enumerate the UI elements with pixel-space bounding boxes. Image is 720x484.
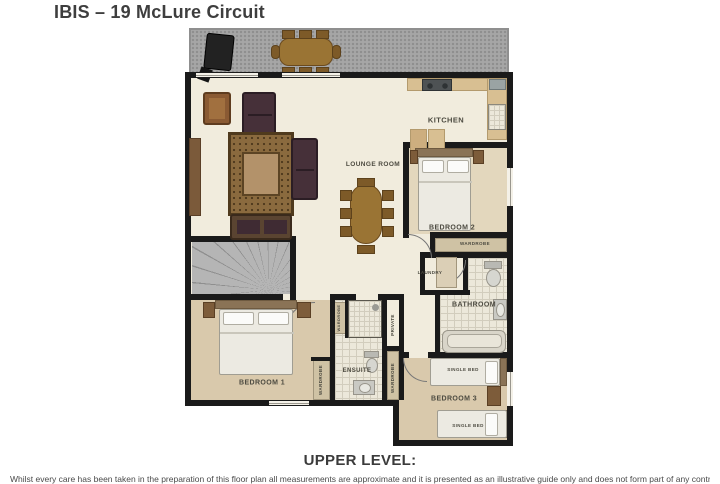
toilet-tank [364, 351, 379, 358]
pillow [485, 413, 498, 436]
wall-segment [290, 236, 296, 300]
wall-segment [430, 232, 507, 238]
window-glass-line [269, 403, 309, 404]
window [507, 372, 513, 406]
vanity-bowl [359, 383, 371, 393]
pillow [258, 312, 289, 325]
bedroom1-label: BEDROOM 1 [239, 380, 285, 387]
single-bed-bottom-label: SINGLE BED [452, 424, 484, 429]
dining-chair [340, 208, 352, 219]
vanity [353, 380, 375, 395]
bed-headboard [415, 148, 473, 157]
wardrobe-bedroom1-label: WARDROBE [319, 365, 324, 395]
bed-headboard [215, 300, 297, 309]
pillow [485, 361, 498, 384]
double-bed [219, 309, 293, 375]
bedside-table [487, 386, 501, 406]
basin-bowl [496, 303, 505, 317]
dining-chair [382, 226, 394, 237]
bathroom-label: BATHROOM [452, 302, 496, 309]
bed-headboard [500, 358, 507, 386]
sofa [291, 138, 318, 200]
kitchen-label: KITCHEN [428, 116, 464, 124]
bedroom2-label: BEDROOM 2 [429, 225, 475, 232]
wall-segment [393, 440, 513, 446]
armchair-cushion [209, 98, 225, 119]
wall-segment [435, 290, 440, 356]
bathtub-inner [447, 334, 502, 348]
dining-chair [382, 190, 394, 201]
outdoor-chair [282, 30, 295, 39]
toilet-bowl [486, 269, 501, 287]
pillow [422, 160, 444, 173]
sofa-cushion [264, 220, 287, 234]
window [282, 73, 340, 77]
bedside-table [297, 302, 311, 318]
dining-chair [340, 226, 352, 237]
wall-segment [403, 142, 409, 238]
dining-chair [357, 245, 375, 254]
sofa-cushion-line [296, 169, 314, 171]
pillow [223, 312, 254, 325]
wardrobe-ensuite-label: WARDROBE [337, 305, 341, 332]
wardrobe-bedroom2-label: WARDROBE [460, 242, 490, 247]
double-bed [418, 157, 471, 231]
rug-center [242, 152, 280, 196]
shower-head [372, 304, 379, 311]
wardrobe-hall-label: WARDROBE [391, 363, 396, 393]
dining-table [350, 184, 382, 244]
staircase [192, 242, 290, 294]
floor-plan: KITCHEN LOUNGE ROOM BEDROOM 2 WARDROBE L… [185, 28, 513, 446]
footer-fineprint: Whilst every care has been taken in the … [10, 474, 710, 484]
rug [228, 132, 294, 216]
window-glass-line [510, 168, 511, 206]
deck-floor [189, 28, 509, 74]
window-glass-line [196, 75, 258, 76]
wall-segment [311, 357, 330, 361]
pillow [447, 160, 469, 173]
bathtub [442, 330, 506, 353]
wall-segment [382, 346, 404, 351]
outdoor-chair [271, 45, 280, 59]
outdoor-chair [299, 30, 312, 39]
private-label: PRIVATE [391, 314, 396, 336]
toilet-tank [484, 261, 502, 269]
stove-cooktop [422, 79, 452, 91]
dining-chair [357, 178, 375, 187]
window-glass-line [510, 372, 511, 406]
bedroom3-label: BEDROOM 3 [431, 396, 477, 403]
window-glass-line [282, 75, 340, 76]
laundry-label: LAUNDRY [418, 271, 443, 276]
outdoor-chair [316, 30, 329, 39]
outdoor-table [279, 38, 333, 66]
page-title: IBIS – 19 McLure Circuit [54, 2, 265, 23]
kitchen-sink [488, 104, 506, 130]
sofa-cushion-line [248, 114, 272, 116]
outdoor-chair [332, 45, 341, 59]
wall-segment [330, 294, 335, 400]
ensuite-label: ENSUITE [343, 368, 372, 374]
bedside-table [410, 150, 418, 164]
dining-chair [382, 208, 394, 219]
sofa [230, 214, 292, 240]
bedside-table [473, 150, 484, 164]
bedside-table [203, 302, 215, 318]
window [196, 73, 258, 77]
blanket-fold-line [419, 181, 472, 183]
shower [348, 300, 382, 338]
sofa-cushion [237, 220, 260, 234]
wall-cabinet [189, 138, 201, 216]
lounge-room-label: LOUNGE ROOM [346, 162, 400, 169]
microwave [489, 79, 506, 90]
single-bed-top-label: SINGLE BED [447, 368, 479, 373]
footer-heading: UPPER LEVEL: [0, 452, 720, 469]
window [507, 168, 513, 206]
armchair [203, 92, 231, 125]
bbq [203, 33, 235, 72]
window [269, 401, 309, 405]
dining-chair [340, 190, 352, 201]
blanket-fold-line [220, 332, 294, 334]
